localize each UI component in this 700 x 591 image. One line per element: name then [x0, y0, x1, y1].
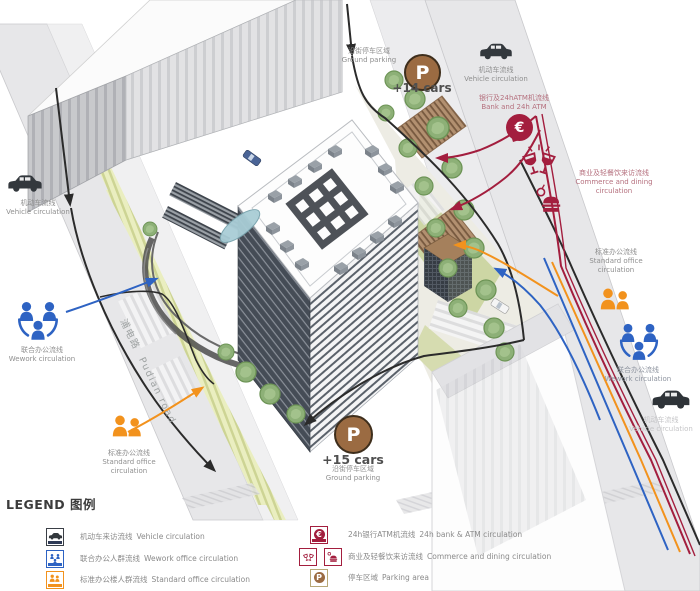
legend-item-atm: € 24h银行ATM机流线24h bank & ATM circulation	[310, 524, 328, 544]
parking-icon-bottom: P	[334, 415, 373, 454]
euro-atm-icon: €	[506, 114, 533, 141]
legend-item-parking: P 停车区域Parking area	[310, 567, 328, 587]
office-people-icon-left	[108, 413, 148, 449]
wework-people-icon-right	[614, 320, 664, 364]
legend-item-dining: 商业及轻餐饮来访流线Commerce and dining circulatio…	[299, 546, 342, 566]
legend-dining-zh: 商业及轻餐饮来访流线	[348, 552, 423, 561]
legend-parking-en: Parking area	[382, 573, 429, 582]
legend-parking-symbol: P	[316, 573, 322, 582]
wework-people-icon-left	[12, 298, 64, 344]
legend-office-en: Standard office circulation	[152, 575, 251, 584]
parking-symbol-bottom: P	[347, 424, 361, 446]
legend-wework-zh: 联合办公人群流线	[80, 554, 140, 563]
site-circulation-diagram: 沿街停车区域 Ground parking P +14 cars 机动车流线 V…	[0, 0, 700, 591]
wine-glasses-icon	[516, 142, 562, 186]
legend-wine-icon	[299, 548, 317, 566]
legend-wework-icon	[46, 550, 64, 568]
car-icon-bottom-right	[650, 386, 692, 412]
legend-burger-icon	[324, 548, 342, 566]
legend-office-zh: 标准办公楼人群流线	[80, 575, 148, 584]
parking-count-bottom: +15 cars	[318, 452, 388, 467]
dining-icon	[533, 184, 567, 216]
legend-office-icon	[46, 571, 64, 589]
legend-item-wework: 联合办公人群流线Wework office circulation	[46, 548, 64, 568]
legend-car-icon	[46, 528, 64, 546]
office-people-icon-right	[596, 286, 636, 322]
legend-vehicle-en: Vehicle circulation	[137, 532, 205, 541]
site-plan-drawing	[0, 0, 700, 591]
legend-atm-icon: €	[310, 526, 328, 544]
legend-parking-icon: P	[310, 569, 328, 587]
legend-atm-zh: 24h银行ATM机流线	[348, 530, 415, 539]
car-icon-top	[478, 40, 514, 62]
legend-dining-en: Commerce and dining circulation	[427, 552, 551, 561]
legend-title: LEGEND 图例	[6, 494, 96, 513]
legend-item-vehicle: 机动车来访流线Vehicle circulation	[46, 526, 64, 546]
legend-wework-en: Wework office circulation	[144, 554, 238, 563]
car-icon-left	[6, 171, 44, 195]
legend-euro-symbol: €	[316, 530, 322, 539]
legend-vehicle-zh: 机动车来访流线	[80, 532, 133, 541]
legend-atm-en: 24h bank & ATM circulation	[419, 530, 522, 539]
parking-count-top: +14 cars	[384, 81, 460, 95]
legend-parking-zh: 停车区域	[348, 573, 378, 582]
euro-symbol: €	[515, 120, 525, 136]
legend-item-office: 标准办公楼人群流线Standard office circulation	[46, 569, 64, 589]
